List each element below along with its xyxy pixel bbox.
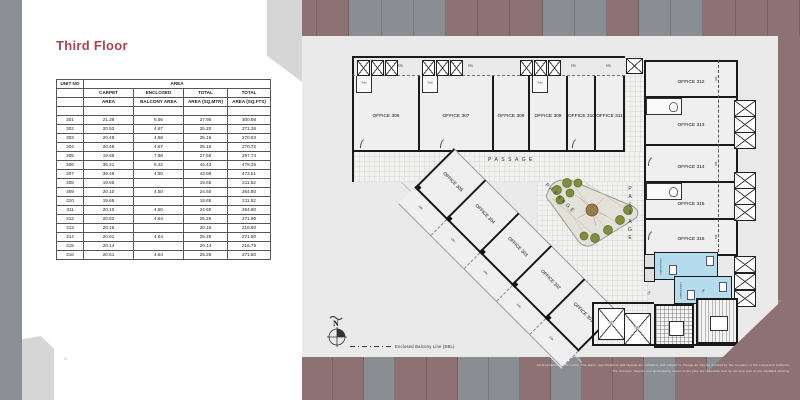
- table-row: 31019.6519.65211.52: [57, 197, 271, 206]
- shaft-box: [734, 256, 756, 273]
- office-label: OFFICE 310: [568, 114, 594, 119]
- table-row: 31620.614.6425.25271.80: [57, 251, 271, 260]
- stripe: [607, 0, 639, 36]
- shaft-group: [357, 60, 398, 76]
- office-label: OFFICE 316: [646, 237, 736, 242]
- lift-box: LIFT: [598, 308, 625, 340]
- passage-label-horizontal: PASSAGE: [452, 157, 572, 163]
- stripe: [736, 0, 768, 36]
- room-office-316: OFFICE 316 EBL: [644, 218, 738, 256]
- floor-plan: EBL EBL EBL EBL Toilet OFFICE 306 Toilet: [302, 36, 778, 357]
- door-arc: [360, 136, 372, 148]
- toilet-room: Toilet: [356, 76, 372, 93]
- office-label: OFFICE 304: [468, 196, 503, 231]
- room-office-308: OFFICE 308: [492, 76, 528, 152]
- office-label: OFFICE 315: [646, 202, 736, 207]
- col-enclosed-l2: BALCONY AREA: [134, 98, 184, 107]
- header-row-3: AREA BALCONY AREA AREA (SQ.MTR) AREA (SQ…: [57, 98, 271, 107]
- common-toilet-block: COMMON TOILET COMMON TOILET: [644, 252, 736, 302]
- col-carpet-l1: CARPET: [84, 89, 134, 98]
- header-row-2: CARPET ENCLOSED TOTAL TOTAL: [57, 89, 271, 98]
- table-row: 30920.104.5024.60264.80: [57, 188, 271, 197]
- shaft-box: [734, 172, 756, 189]
- col-total-mtr-l2: AREA (SQ.MTR): [184, 98, 228, 107]
- passage-label-vertical: PASSAGE: [627, 186, 633, 243]
- door-arc: [572, 136, 584, 148]
- stripe: [543, 0, 575, 36]
- table-row: 30819.6519.65211.52: [57, 179, 271, 188]
- common-toilet-label: COMMON TOILET: [680, 282, 682, 299]
- office-label: OFFICE 301: [566, 295, 601, 330]
- table-row: 30739.494.5043.99473.51: [57, 170, 271, 179]
- toilet-room: Toilet: [422, 76, 438, 93]
- bottom-left-corner-shape: [22, 336, 54, 400]
- stripe: [446, 0, 478, 36]
- shaft-box: [734, 188, 756, 205]
- staircase: [654, 304, 694, 348]
- toilet-room: Toilet: [532, 76, 548, 93]
- shaft-box: [357, 60, 370, 76]
- office-label: OFFICE 309: [530, 114, 566, 119]
- office-label: OFFICE 314: [646, 165, 736, 170]
- stripe: [575, 0, 607, 36]
- stripe: [414, 0, 446, 36]
- ebl-label: EBL: [398, 64, 403, 67]
- room-office-314: OFFICE 314 EBL: [644, 144, 738, 185]
- shaft-box: [436, 60, 449, 76]
- shaft-box: [548, 60, 561, 76]
- ebl-label: EBL: [418, 204, 424, 210]
- ebl-label: EBL: [450, 237, 456, 243]
- shaft-group: [422, 60, 463, 76]
- shaft-box: [734, 132, 756, 149]
- toilet-label: Toilet: [361, 82, 367, 85]
- shaft-box: [422, 60, 435, 76]
- ebl-dashed-line: [718, 60, 719, 252]
- office-label: OFFICE 303: [500, 229, 535, 264]
- ebl-label: EBL: [516, 303, 522, 309]
- office-label: OFFICE 308: [494, 114, 528, 119]
- header-row-1: UNIT NO AREA: [57, 80, 271, 89]
- north-arrow-icon: N: [324, 314, 350, 348]
- north-label: N: [333, 319, 339, 328]
- stripe: [302, 357, 333, 400]
- table-row: 31220.624.6425.26271.90: [57, 215, 271, 224]
- col-carpet-l2: AREA: [84, 98, 134, 107]
- room-office-307: Toilet OFFICE 307: [418, 76, 492, 152]
- wall-segment: [592, 302, 594, 344]
- table-row: 31420.614.6425.25271.80: [57, 233, 271, 242]
- stripe: [317, 0, 349, 36]
- ebl-label: EBL: [468, 64, 473, 67]
- wc-fixture: [706, 256, 714, 266]
- left-gray-band: [0, 0, 22, 400]
- table-row: 30220.534.6725.20271.26: [57, 125, 271, 134]
- wc-fixture: [669, 265, 677, 275]
- col-total-mtr-l1: TOTAL: [184, 89, 228, 98]
- door-arc: [440, 136, 452, 148]
- room-office-306: Toilet OFFICE 306: [352, 76, 418, 152]
- col-total-fts-l1: TOTAL: [228, 89, 271, 98]
- stripe: [639, 0, 671, 36]
- wall-segment: [592, 302, 654, 304]
- stripe: [703, 0, 735, 36]
- shaft-group: [520, 60, 561, 76]
- shaft-box: [734, 204, 756, 221]
- legend-label: Enclosed Balcony Line (EBL): [395, 344, 455, 349]
- ebl-line-sample: [350, 346, 392, 347]
- office-label: OFFICE 313: [646, 123, 736, 128]
- ebl-label: EBL: [549, 336, 555, 342]
- shaft-box: [450, 60, 463, 76]
- table-row: 30519.687.9827.66297.74: [57, 152, 271, 161]
- stripe: [349, 0, 381, 36]
- ebl-label: EBL: [606, 64, 611, 67]
- shaft-box: [371, 60, 384, 76]
- shaft-box: [734, 273, 756, 290]
- table-row: 31520.1420.14216.79: [57, 242, 271, 251]
- footer-disclaimer: All dimensions are in metric. The plans,…: [395, 363, 790, 374]
- shaft-box: [385, 60, 398, 76]
- toilet-label: Toilet: [537, 82, 543, 85]
- office-label: OFFICE 302: [533, 262, 568, 297]
- page-spine-shape: [267, 0, 302, 82]
- shaft-box: [534, 60, 547, 76]
- office-label: OFFICE 311: [596, 114, 623, 119]
- col-enclosed-l1: ENCLOSED: [134, 89, 184, 98]
- room-office-311: OFFICE 311: [594, 76, 625, 152]
- room-office-313: OFFICE 313: [644, 96, 738, 146]
- table-row: 31320.1520.15216.90: [57, 224, 271, 233]
- table-row: 30121.396.5627.95300.86: [57, 116, 271, 125]
- col-total-fts-l2: AREA (SQ.FTS): [228, 98, 271, 107]
- legend: Enclosed Balcony Line (EBL): [350, 344, 455, 349]
- area-table-header: UNIT NO AREA CARPET ENCLOSED TOTAL TOTAL…: [57, 80, 271, 107]
- unit-no-header: UNIT NO: [57, 80, 84, 89]
- shaft-box: [626, 58, 643, 74]
- staircase: [696, 298, 738, 344]
- shaft-box: [520, 60, 533, 76]
- wc-fixture: [719, 282, 727, 292]
- stripe: [510, 0, 542, 36]
- stripe: [364, 357, 395, 400]
- shaft-box: [734, 116, 756, 133]
- table-row: 30420.484.6725.15270.72: [57, 143, 271, 152]
- toilet-room: [646, 98, 682, 115]
- wall-segment: [592, 344, 740, 346]
- room-office-310: OFFICE 310: [566, 76, 594, 152]
- top-stripe-band: [285, 0, 800, 36]
- common-toilet-label: COMMON TOILET: [660, 258, 662, 275]
- disclaimer-line-2: The furniture, fixtures and landscaping …: [395, 369, 790, 375]
- area-table: UNIT NO AREA CARPET ENCLOSED TOTAL TOTAL…: [56, 79, 271, 260]
- stripe: [478, 0, 510, 36]
- table-row: [57, 107, 271, 116]
- page-number: 11: [64, 357, 68, 361]
- stripe: [382, 0, 414, 36]
- ebl-label: EBL: [571, 64, 576, 67]
- room-office-309: Toilet OFFICE 309: [528, 76, 566, 152]
- area-header: AREA: [84, 80, 271, 89]
- stripe: [333, 357, 364, 400]
- office-label: OFFICE 305: [436, 165, 470, 199]
- ebl-label: EBL: [483, 270, 489, 276]
- stripe: [671, 0, 703, 36]
- office-label: OFFICE 306: [354, 114, 418, 119]
- lift-label: LIFT: [605, 322, 619, 325]
- table-row: 30320.484.6825.16270.83: [57, 134, 271, 143]
- top-offices-row: Toilet OFFICE 306 Toilet OFFICE 307 OFFI…: [352, 76, 625, 152]
- page-title: Third Floor: [56, 38, 128, 53]
- toilet-room: [646, 183, 682, 200]
- wc-fixture: [687, 290, 695, 300]
- room-office-312: OFFICE 312 EBL: [644, 60, 738, 100]
- stripe: [768, 0, 800, 36]
- office-label: OFFICE 307: [420, 114, 492, 119]
- area-table-body: 30121.396.5627.95300.8630220.534.6725.20…: [57, 107, 271, 260]
- toilet-label: Toilet: [427, 82, 433, 85]
- top-balcony-strip: EBL EBL EBL EBL: [352, 56, 625, 76]
- lift-label: LIFT: [631, 327, 645, 330]
- office-label: OFFICE 312: [646, 80, 736, 85]
- shaft-box: [734, 100, 756, 117]
- table-row: 30636.218.2244.43478.25: [57, 161, 271, 170]
- lift-box: LIFT: [624, 313, 651, 345]
- table-row: 31120.104.5024.60264.80: [57, 206, 271, 215]
- room-office-315: OFFICE 315: [644, 181, 738, 222]
